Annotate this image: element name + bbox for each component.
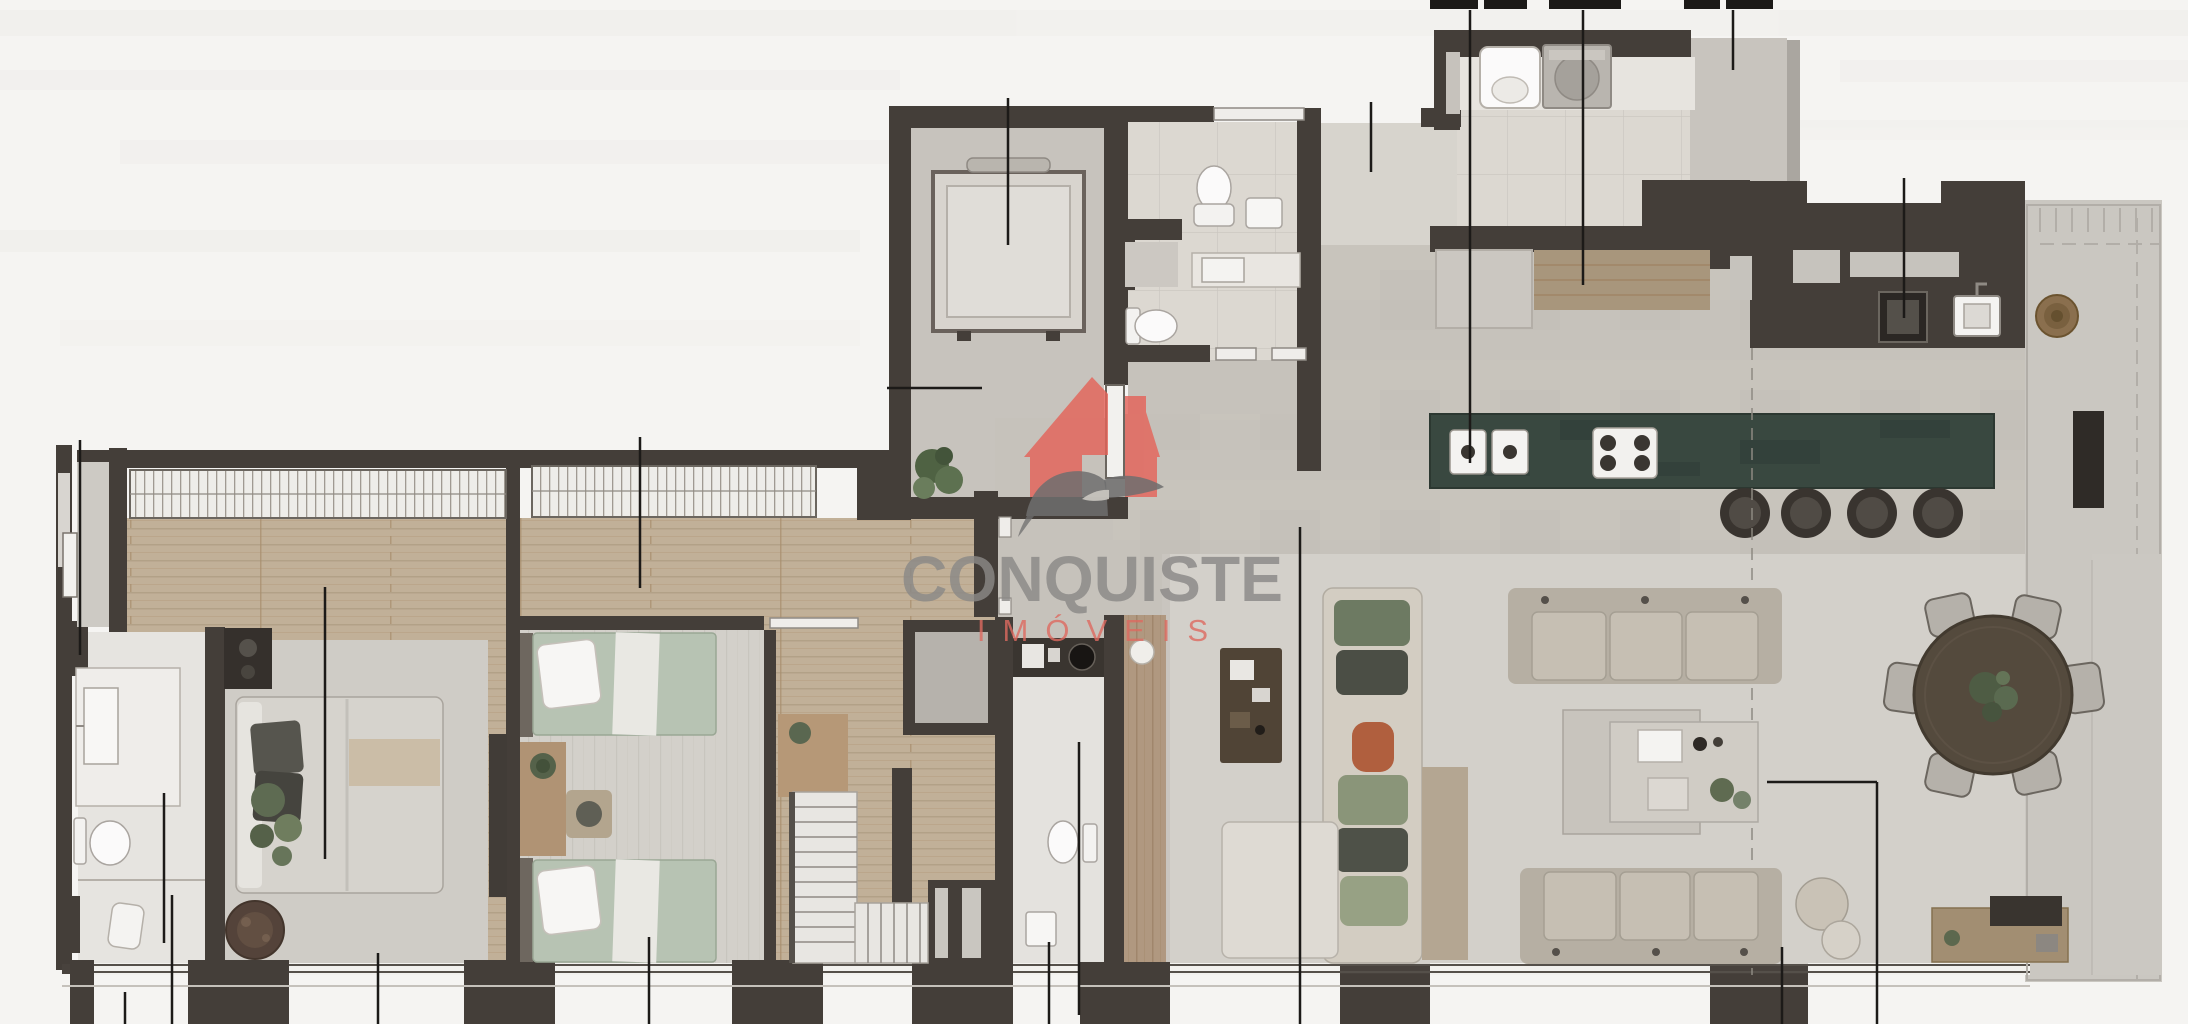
svg-text:CONQUISTE: CONQUISTE [901, 543, 1283, 615]
svg-text:IMÓVEIS: IMÓVEIS [977, 613, 1225, 648]
